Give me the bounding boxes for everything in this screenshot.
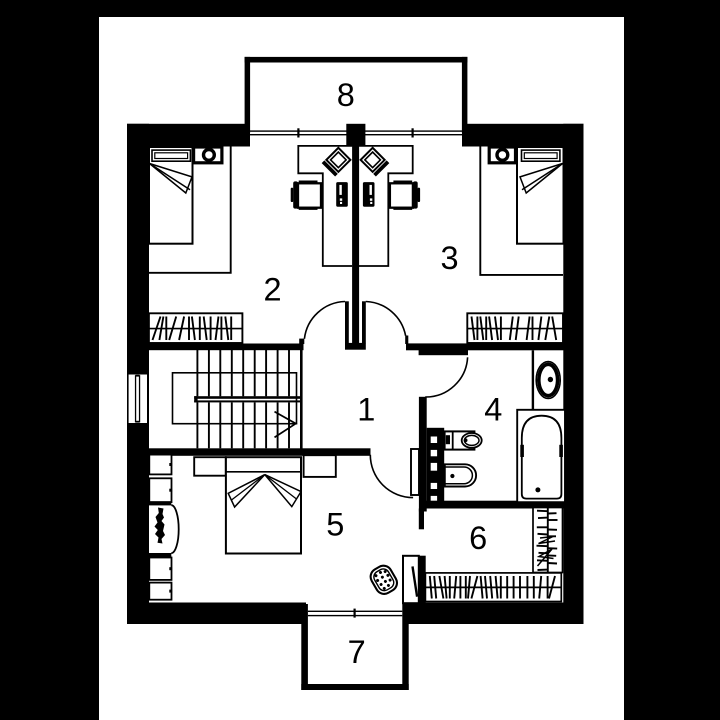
svg-text:4: 4: [484, 391, 502, 427]
svg-text:8: 8: [337, 77, 355, 113]
svg-text:2: 2: [264, 272, 282, 308]
svg-text:5: 5: [326, 506, 344, 542]
svg-text:6: 6: [469, 520, 487, 556]
svg-text:7: 7: [348, 634, 366, 670]
svg-text:3: 3: [441, 240, 459, 276]
svg-text:1: 1: [357, 391, 375, 427]
